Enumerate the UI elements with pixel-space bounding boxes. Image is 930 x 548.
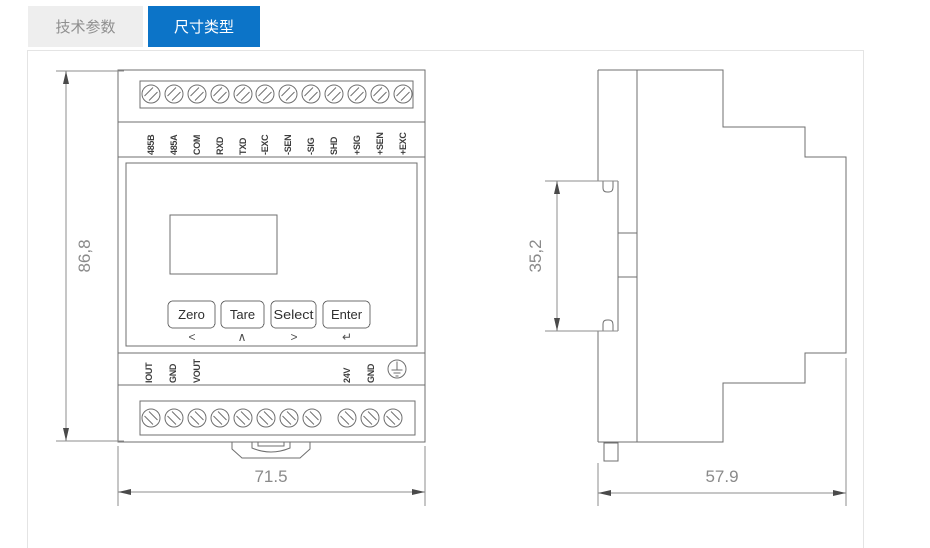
screw-terminal-icon [384,409,402,427]
rail-clip-tab-bottom [603,320,613,331]
side-profile-outline [598,70,846,442]
up-arrow-symbol: ∧ [238,330,247,344]
din-rail-recess [603,181,637,331]
terminal-label: +SIG [352,135,362,155]
terminal-label: 24V [342,368,352,383]
height-dimension: 86,8 [56,71,124,441]
terminal-label: IOUT [144,362,154,383]
display-window [170,215,277,274]
select-button-label: Select [274,307,314,322]
enter-button-label: Enter [331,307,363,322]
screw-terminal-icon [165,85,183,103]
width-dimension: 71.5 [118,446,425,506]
screw-terminal-icon [188,85,206,103]
screw-terminal-icon [142,85,160,103]
terminal-label: -SIG [306,137,316,155]
terminal-label: RXD [215,136,225,155]
terminal-label: COM [192,135,202,155]
screw-terminal-icon [188,409,206,427]
bottom-terminal-labels: IOUT GND VOUT 24V GND [144,358,406,383]
zero-button-label: Zero [178,307,205,322]
terminal-label: -SEN [283,135,293,155]
right-arrow-symbol: > [290,330,297,344]
screw-terminal-icon [211,409,229,427]
screw-terminal-icon [338,409,356,427]
front-body-outline [118,70,425,442]
page: 技术参数 尺寸类型 [0,0,930,548]
screw-terminal-icon [371,85,389,103]
front-view-drawing: 485B 485A COM RXD TXD -EXC -SEN -SIG SHD… [56,70,425,506]
bottom-terminal-block [140,401,415,435]
rail-height-dimension: 35,2 [526,181,618,331]
din-rail-clip [232,442,310,458]
screw-terminal-icon [394,85,412,103]
terminal-label: TXD [238,137,248,155]
terminal-label: GND [366,363,376,383]
height-dimension-value: 86,8 [75,239,94,272]
side-view-drawing: 35,2 57.9 [526,70,846,506]
top-terminal-block [140,81,413,108]
tare-button-label: Tare [230,307,255,322]
left-arrow-symbol: < [188,330,195,344]
protective-earth-icon [388,360,406,378]
screw-terminal-icon [142,409,160,427]
keypad: Zero Tare Select Enter < ∧ > ↵ [168,301,370,344]
screw-terminal-icon [280,409,298,427]
top-terminal-labels: 485B 485A COM RXD TXD -EXC -SEN -SIG SHD… [146,132,408,155]
screw-terminal-icon [257,409,275,427]
terminal-label: +SEN [375,132,385,155]
screw-terminal-icon [303,409,321,427]
terminal-label: SHD [329,136,339,155]
enter-arrow-symbol: ↵ [342,330,352,344]
terminal-label: VOUT [192,358,202,383]
terminal-label: 485B [146,134,156,155]
terminal-label: +EXC [398,132,408,155]
screw-terminal-icon [211,85,229,103]
depth-dimension: 57.9 [598,358,846,506]
terminal-label: 485A [169,134,179,155]
rail-height-dimension-value: 35,2 [526,239,545,272]
screw-terminal-icon [234,85,252,103]
screw-terminal-icon [165,409,183,427]
screw-terminal-icon [348,85,366,103]
screw-terminal-icon [234,409,252,427]
terminal-label: GND [168,363,178,383]
clip-latch [604,443,618,461]
screw-terminal-icon [279,85,297,103]
dimension-drawing: 485B 485A COM RXD TXD -EXC -SEN -SIG SHD… [0,0,930,548]
screw-terminal-icon [361,409,379,427]
screw-terminal-icon [325,85,343,103]
rail-clip-tab-top [603,181,613,192]
screw-terminal-icon [302,85,320,103]
screw-terminal-icon [256,85,274,103]
width-dimension-value: 71.5 [254,467,287,486]
terminal-label: -EXC [260,134,270,155]
depth-dimension-value: 57.9 [705,467,738,486]
